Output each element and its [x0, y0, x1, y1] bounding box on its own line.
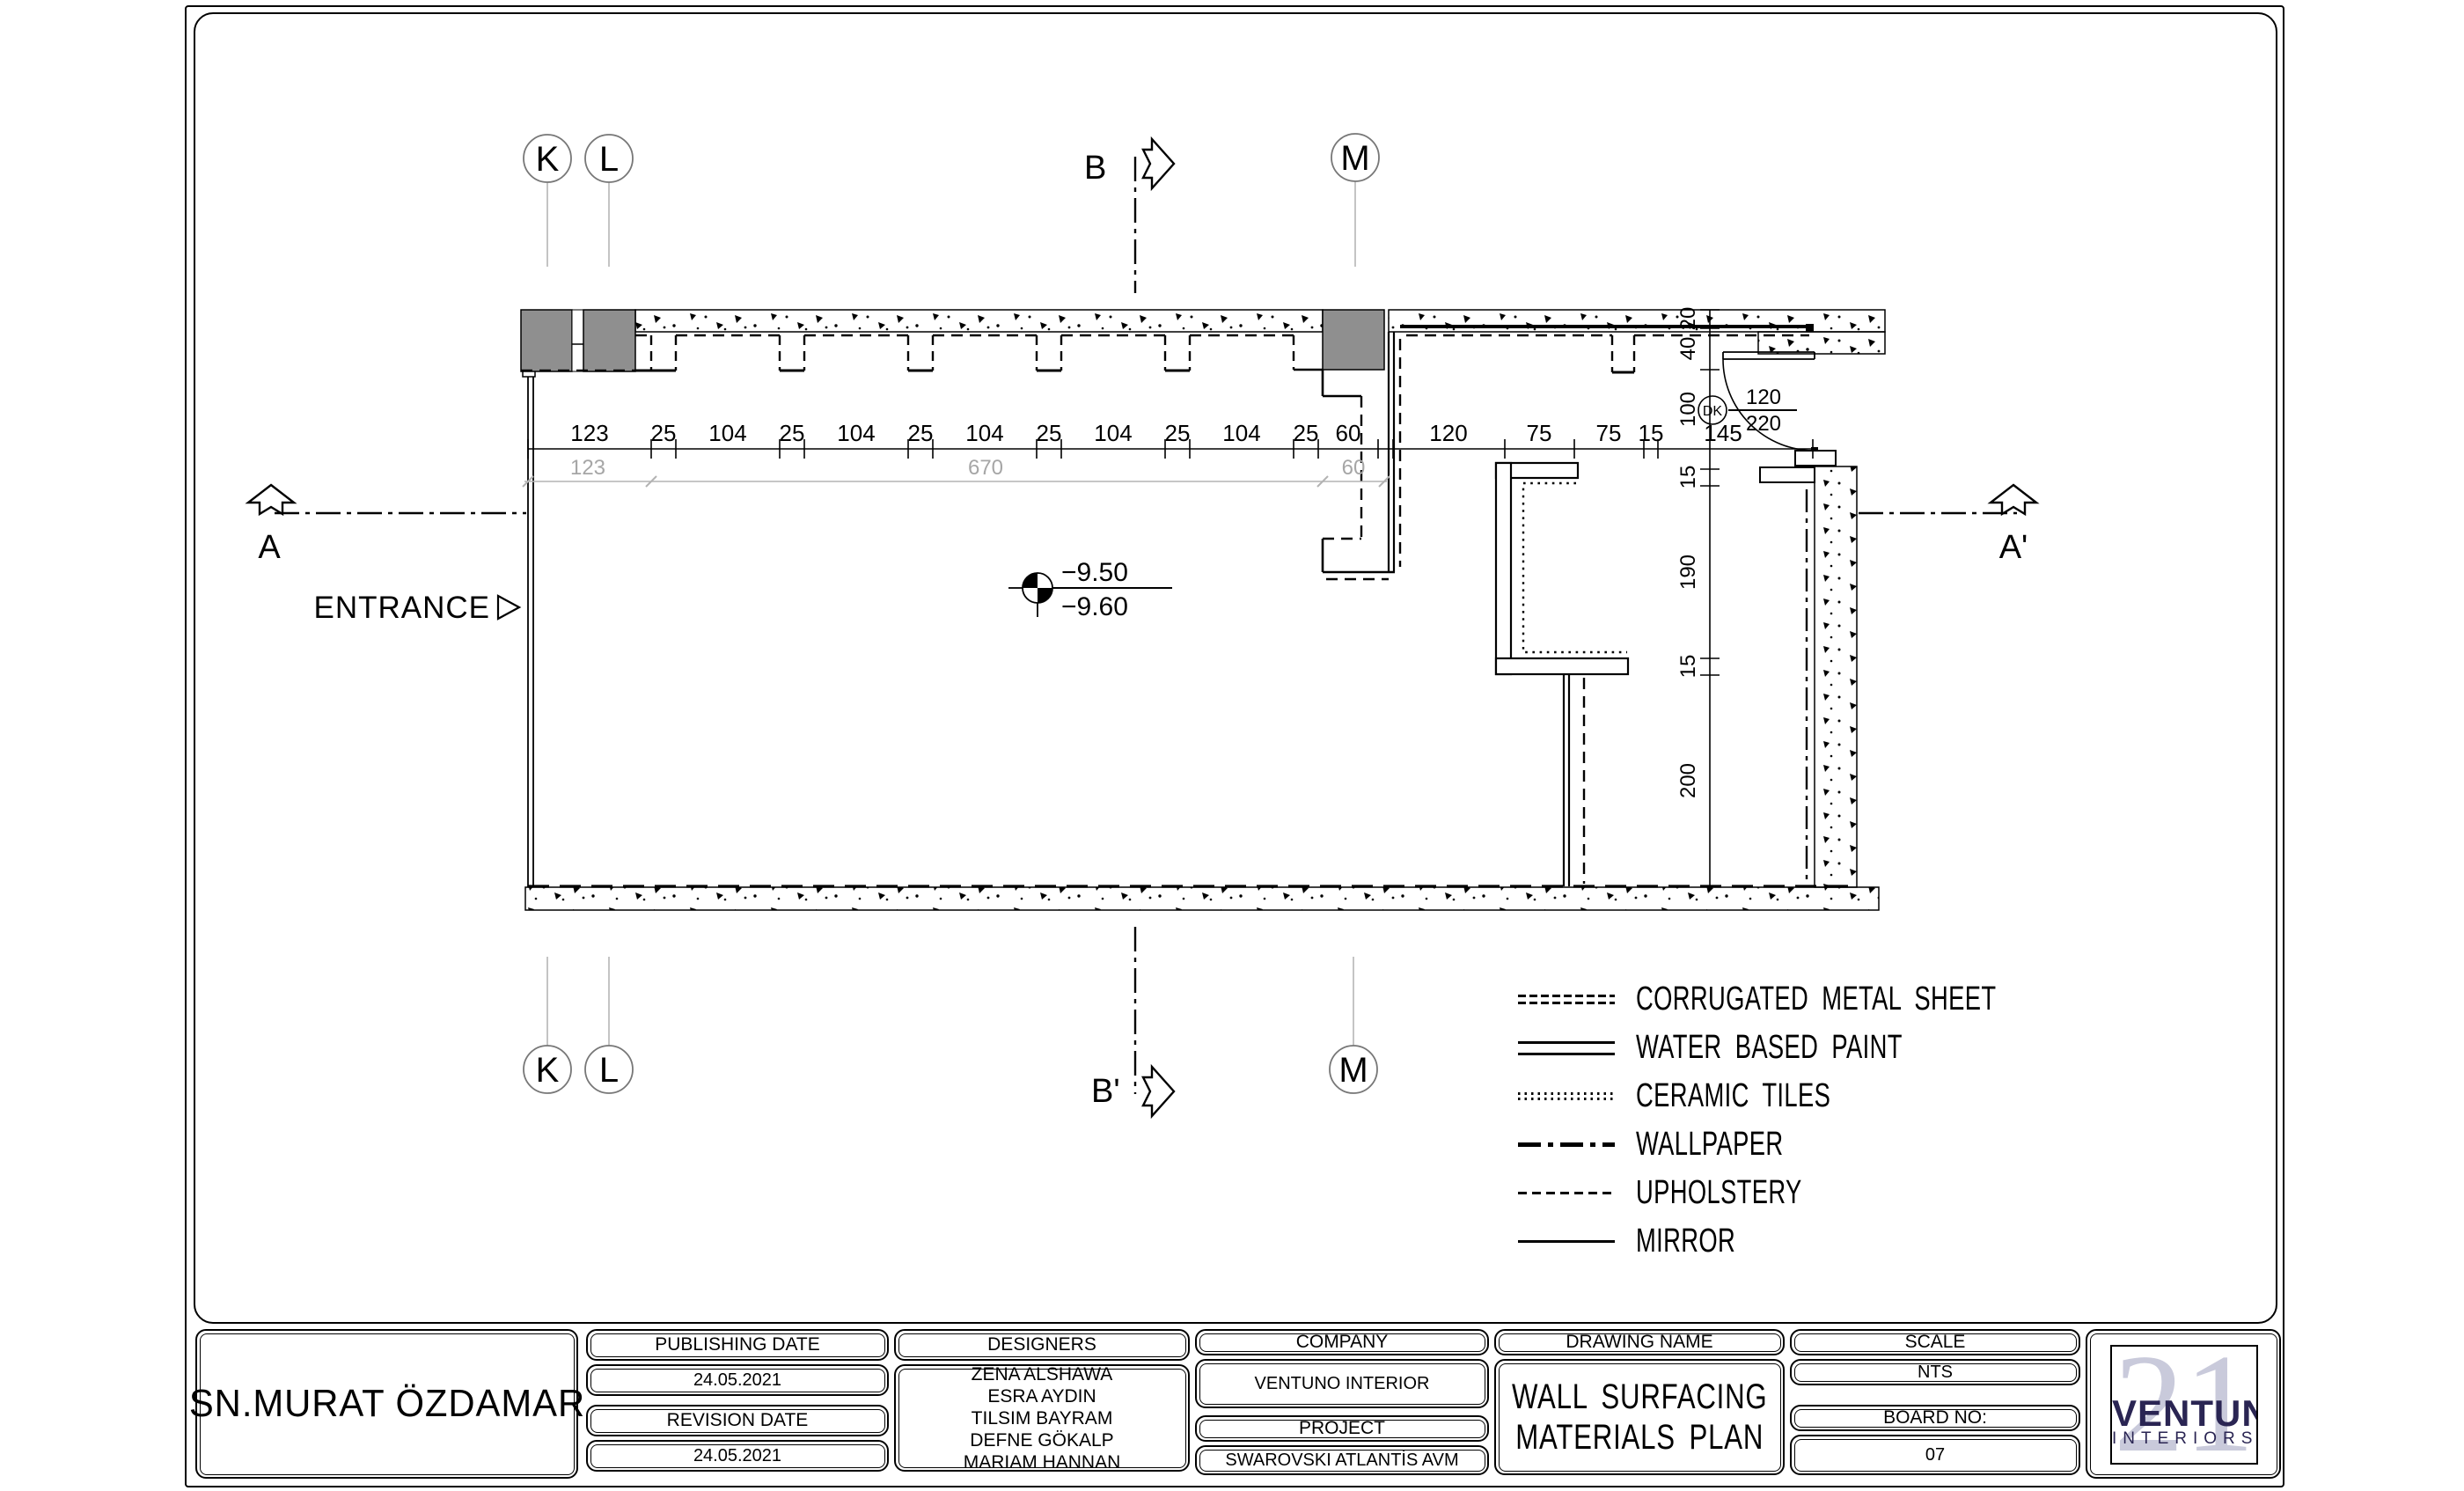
dim-label-v: 200 [1676, 763, 1700, 798]
company-value: VENTUNO INTERIOR [1255, 1374, 1430, 1394]
top-wall-finish [521, 335, 1294, 371]
scale-value-box: NTS [1790, 1359, 2080, 1385]
elevation-lower: −9.60 [1061, 592, 1128, 621]
designer-name: TILSIM BAYRAM [964, 1407, 1121, 1429]
section-arrow-a [248, 485, 294, 514]
dim-label: 25 [780, 420, 805, 446]
dim-label: 75 [1527, 420, 1552, 446]
grid-markers: K L M K L M [524, 134, 1379, 1093]
designers-label: DESIGNERS [987, 1334, 1096, 1355]
dim-label: 104 [837, 420, 875, 446]
dim-label-v: 15 [1676, 466, 1700, 489]
designer-name: MARIAM HANNAN [964, 1451, 1121, 1473]
project-value: SWAROVSKI ATLANTİS AVM [1225, 1451, 1458, 1471]
door-jamb-cap [1795, 451, 1836, 466]
revision-date-header: REVISION DATE [586, 1405, 889, 1436]
dim-label-gray: 123 [570, 456, 605, 480]
client-name: SN.MURAT ÖZDAMAR [188, 1382, 584, 1426]
dim-label: 25 [1294, 420, 1319, 446]
section-arrow-b-prime [1143, 1067, 1174, 1116]
dim-label-v: 15 [1676, 655, 1700, 679]
designer-name: ESRA AYDIN [964, 1385, 1121, 1407]
grid-marker-k-top: K [536, 140, 560, 179]
grid-marker-l-top: L [599, 140, 619, 179]
dim-label: 104 [708, 420, 746, 446]
elevation-marker: −9.50 −9.60 [1008, 558, 1172, 621]
legend-item: WATER BASED PAINT [1518, 1024, 2081, 1072]
pilaster-m [1323, 310, 1384, 370]
dimension-row: 123 25 104 25 104 25 104 25 104 25 104 2… [528, 420, 1813, 459]
company-label: COMPANY [1296, 1332, 1389, 1353]
corrugated-metal-swatch-icon [1518, 995, 1615, 1004]
section-label-b: B [1084, 150, 1106, 187]
legend-label: UPHOLSTERY [1636, 1174, 1802, 1212]
dim-label-gray: 60 [1342, 456, 1366, 480]
door-tag-label: DK [1703, 404, 1723, 419]
logo-brand: VENTUNO [2112, 1392, 2256, 1435]
publishing-date-value: 24.05.2021 [693, 1370, 781, 1391]
legend-label: WATER BASED PAINT [1636, 1029, 1903, 1067]
legend-label: CORRUGATED METAL SHEET [1636, 981, 1996, 1018]
door-width: 120 [1746, 386, 1781, 409]
company-value-box: VENTUNO INTERIOR [1195, 1359, 1489, 1408]
pilaster-l [583, 310, 635, 371]
company-header: COMPANY [1195, 1329, 1489, 1355]
floor-plan-drawing: DK 120 220 123 25 104 25 10 [0, 0, 2464, 1329]
dimension-column-right: 20 40 100 15 190 15 200 [1676, 307, 1720, 887]
dim-label: 60 [1336, 420, 1361, 446]
scale-header: SCALE [1790, 1329, 2080, 1355]
legend-label: MIRROR [1636, 1223, 1735, 1260]
entrance-arrow-icon [498, 596, 519, 619]
drawing-name-line2: MATERIALS PLAN [1512, 1417, 1768, 1458]
ventuno-logo: 21 VENTUNO INTERIORS [2110, 1345, 2258, 1465]
publishing-date-header: PUBLISHING DATE [586, 1329, 889, 1361]
ceramic-tiles-swatch-icon [1518, 1092, 1615, 1100]
water-based-paint-swatch-icon [1518, 1041, 1615, 1055]
legend-item: CERAMIC TILES [1518, 1072, 2081, 1120]
grid-marker-l-bottom: L [599, 1051, 619, 1090]
client-name-box: SN.MURAT ÖZDAMAR [195, 1329, 578, 1479]
dim-label: 25 [1165, 420, 1191, 446]
board-no-label: BOARD NO: [1883, 1407, 1987, 1429]
grid-marker-m-top: M [1340, 139, 1369, 178]
publishing-date-value-box: 24.05.2021 [586, 1364, 889, 1396]
project-label: PROJECT [1299, 1418, 1385, 1439]
dim-label: 75 [1596, 420, 1622, 446]
dim-label-v: 100 [1676, 392, 1700, 427]
upholstery-swatch-icon [1518, 1192, 1615, 1194]
legend-item: CORRUGATED METAL SHEET [1518, 975, 2081, 1024]
right-wall-column [1815, 466, 1857, 887]
legend-label: WALLPAPER [1636, 1126, 1783, 1164]
dim-label: 104 [965, 420, 1003, 446]
section-markers: A A' B B' [248, 139, 2036, 1116]
dim-label-v: 20 [1676, 307, 1700, 331]
grid-marker-m-bottom: M [1338, 1051, 1368, 1090]
revision-date-value: 24.05.2021 [693, 1446, 781, 1466]
publishing-date-label: PUBLISHING DATE [655, 1334, 819, 1355]
door-height: 220 [1746, 412, 1781, 436]
entrance-label: ENTRANCE [313, 591, 490, 625]
pilaster-k [521, 310, 572, 371]
wall-return-cap [1760, 467, 1815, 482]
wallpaper-swatch-icon [1518, 1142, 1615, 1147]
drawing-name-label: DRAWING NAME [1566, 1332, 1712, 1353]
revision-date-value-box: 24.05.2021 [586, 1440, 889, 1472]
section-label-b-prime: B' [1091, 1073, 1120, 1110]
dim-label: 25 [651, 420, 677, 446]
ceramic-tiles-line [1523, 483, 1627, 652]
board-no-value-box: 07 [1790, 1435, 2080, 1475]
mirror-swatch-icon [1518, 1240, 1615, 1244]
dim-label-v: 40 [1676, 337, 1700, 361]
logo-box: 21 VENTUNO INTERIORS [2086, 1329, 2281, 1479]
grid-marker-k-bottom: K [536, 1051, 560, 1090]
dim-label: 123 [570, 420, 608, 446]
designers-list-box: ZENA ALSHAWA ESRA AYDIN TILSIM BAYRAM DE… [894, 1364, 1190, 1472]
designer-name: ZENA ALSHAWA [964, 1363, 1121, 1385]
materials-legend: CORRUGATED METAL SHEET WATER BASED PAINT… [1518, 975, 2081, 1266]
scale-label: SCALE [1905, 1332, 1966, 1353]
dim-label: 25 [1037, 420, 1062, 446]
section-arrow-b [1143, 139, 1174, 188]
dim-label-v: 190 [1676, 555, 1700, 590]
revision-date-label: REVISION DATE [667, 1410, 809, 1431]
logo-sub: INTERIORS [2112, 1429, 2256, 1449]
project-value-box: SWAROVSKI ATLANTİS AVM [1195, 1445, 1489, 1475]
drawing-name-header: DRAWING NAME [1494, 1329, 1785, 1355]
fitting-booth [1496, 463, 1628, 886]
section-arrow-a-prime [1991, 485, 2036, 514]
dimension-row-secondary: 123 670 60 [523, 456, 1390, 487]
designer-name: DEFNE GÖKALP [964, 1429, 1121, 1451]
designers-header: DESIGNERS [894, 1329, 1190, 1361]
entrance: ENTRANCE [313, 591, 519, 625]
elevation-upper: −9.50 [1061, 558, 1128, 587]
dim-label: 120 [1429, 420, 1467, 446]
section-label-a-prime: A' [1999, 529, 2028, 566]
scale-value: NTS [1918, 1362, 1953, 1383]
legend-item: WALLPAPER [1518, 1120, 2081, 1169]
legend-item: MIRROR [1518, 1217, 2081, 1266]
board-no-header: BOARD NO: [1790, 1405, 2080, 1431]
drawing-name-line1: WALL SURFACING [1512, 1377, 1768, 1417]
bottom-wall-band [525, 887, 1879, 910]
project-header: PROJECT [1195, 1415, 1489, 1442]
legend-label: CERAMIC TILES [1636, 1077, 1830, 1115]
top-wall-left-band [635, 310, 1323, 332]
dim-label: 15 [1639, 420, 1664, 446]
legend-item: UPHOLSTERY [1518, 1169, 2081, 1217]
dim-label: 25 [908, 420, 934, 446]
dim-label: 104 [1094, 420, 1132, 446]
dim-label: 104 [1222, 420, 1260, 446]
section-label-a: A [258, 529, 281, 566]
drawing-name-box: WALL SURFACING MATERIALS PLAN [1494, 1359, 1785, 1475]
board-no-value: 07 [1925, 1445, 1945, 1465]
dim-label-gray: 670 [968, 456, 1003, 480]
top-right-corner-wall [1758, 332, 1885, 354]
